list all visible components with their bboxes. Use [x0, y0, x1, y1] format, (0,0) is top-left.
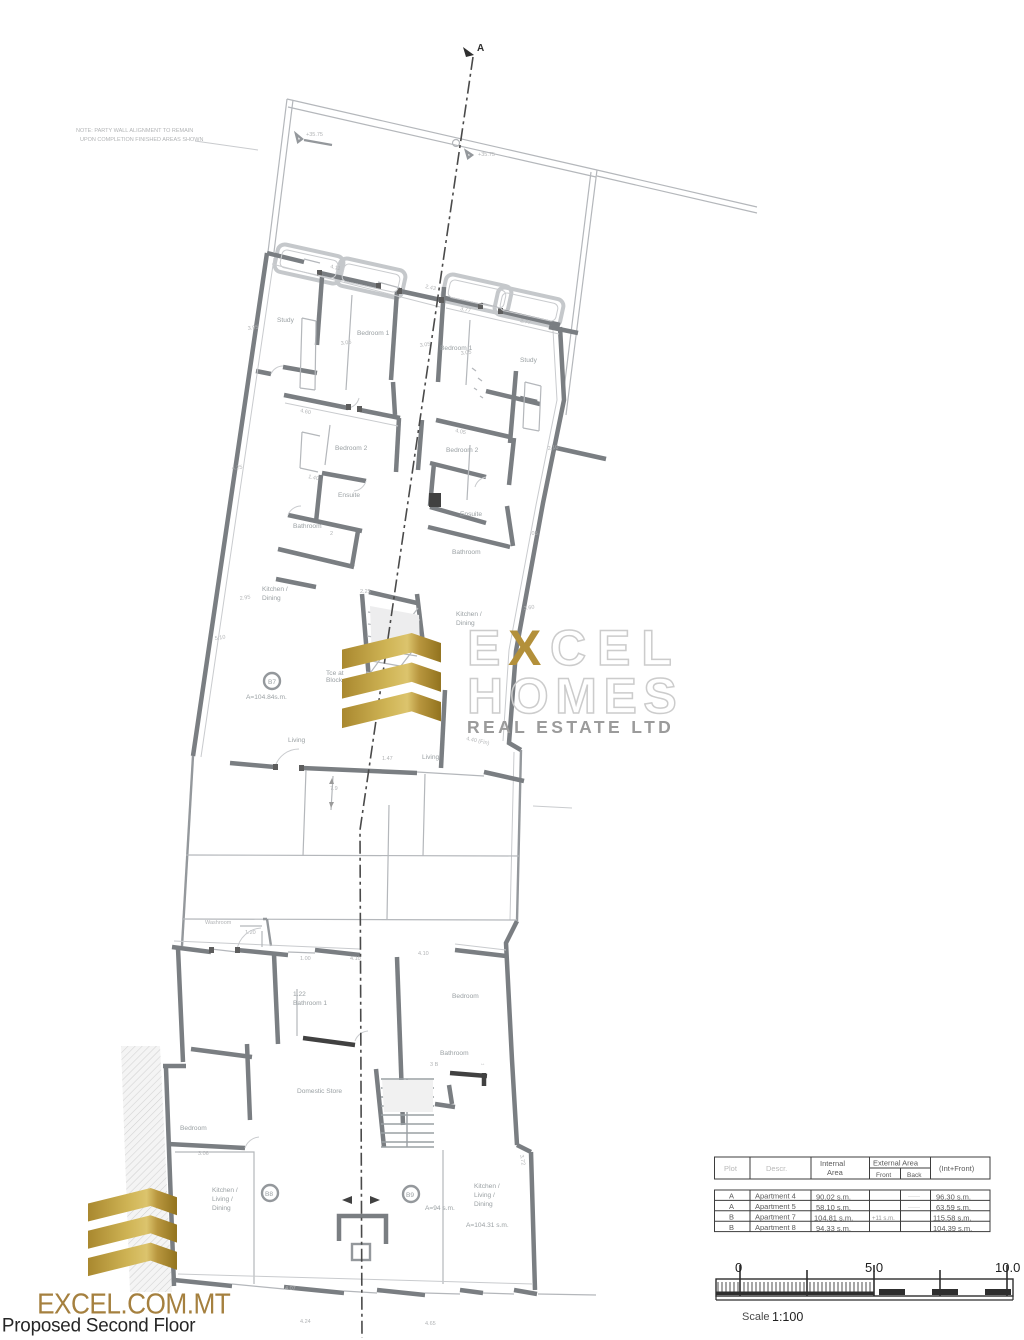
svg-text:2.10: 2.10	[547, 445, 558, 452]
svg-text:Back: Back	[907, 1172, 922, 1179]
svg-text:96.30 s.m.: 96.30 s.m.	[936, 1193, 971, 1202]
svg-text:Bathroom: Bathroom	[452, 549, 481, 556]
svg-text:4.40 (Fin): 4.40 (Fin)	[466, 736, 490, 747]
svg-text:2.95: 2.95	[239, 595, 250, 602]
svg-text:B8: B8	[265, 1191, 273, 1198]
svg-text:Bedroom: Bedroom	[180, 1125, 207, 1132]
svg-text:REAL ESTATE LTD: REAL ESTATE LTD	[467, 717, 674, 737]
svg-text:Dining: Dining	[262, 595, 281, 602]
svg-text:Internal: Internal	[820, 1159, 845, 1168]
svg-text:4.10: 4.10	[418, 951, 429, 957]
svg-text:Tce at: Tce at	[326, 670, 344, 677]
svg-text:Ensuite: Ensuite	[338, 492, 360, 499]
svg-text:Kitchen /: Kitchen /	[262, 586, 288, 593]
svg-text:A=104.31 s.m.: A=104.31 s.m.	[466, 1222, 509, 1229]
svg-text:2.25: 2.25	[360, 589, 371, 595]
svg-text:UPON COMPLETION FINISHED AREAS: UPON COMPLETION FINISHED AREAS SHOWN	[80, 137, 203, 143]
svg-text:B: B	[729, 1212, 734, 1221]
svg-text:+11 s.m.: +11 s.m.	[872, 1216, 895, 1222]
svg-text:Bedroom 2: Bedroom 2	[335, 445, 368, 452]
svg-text:Living /: Living /	[474, 1192, 495, 1199]
svg-text:4.60: 4.60	[300, 408, 312, 416]
svg-text:Front: Front	[876, 1172, 891, 1179]
svg-text:104.81 s.m.: 104.81 s.m.	[814, 1213, 853, 1222]
svg-text:Proposed Second Floor: Proposed Second Floor	[2, 1315, 196, 1337]
svg-text:B7: B7	[268, 679, 276, 686]
svg-text:1.47: 1.47	[382, 756, 393, 762]
svg-text:Living: Living	[422, 754, 440, 761]
svg-text:Kitchen /: Kitchen /	[474, 1183, 500, 1190]
svg-text:Study: Study	[520, 357, 538, 364]
svg-text:1:100: 1:100	[772, 1310, 803, 1324]
svg-text:Domestic Store: Domestic Store	[297, 1088, 342, 1095]
svg-text:1.40: 1.40	[308, 474, 320, 482]
svg-text:——: ——	[908, 1194, 920, 1200]
svg-text:3 B: 3 B	[430, 1062, 439, 1068]
svg-text:3.72: 3.72	[518, 1154, 526, 1166]
svg-text:Bedroom: Bedroom	[452, 993, 479, 1000]
svg-text:Apartment 4: Apartment 4	[755, 1192, 796, 1201]
svg-text:90.02 s.m.: 90.02 s.m.	[816, 1193, 851, 1202]
svg-text:Scale: Scale	[742, 1311, 770, 1323]
svg-text:Study: Study	[277, 317, 295, 324]
svg-text:Apartment 8: Apartment 8	[755, 1223, 796, 1232]
svg-text:3.60: 3.60	[523, 605, 534, 612]
svg-text:4.24: 4.24	[300, 1319, 311, 1325]
svg-text:B: B	[729, 1223, 734, 1232]
svg-text:A=94 s.m.: A=94 s.m.	[425, 1205, 455, 1212]
svg-text:94.33 s.m.: 94.33 s.m.	[816, 1224, 851, 1233]
svg-text:Bedroom 1: Bedroom 1	[357, 330, 390, 337]
svg-text:Dining: Dining	[474, 1201, 493, 1208]
svg-text:104.39 s.m.: 104.39 s.m.	[933, 1224, 972, 1233]
svg-text:4.25: 4.25	[231, 465, 242, 472]
svg-text:Block: Block	[326, 677, 343, 684]
svg-text:58.10 s.m.: 58.10 s.m.	[816, 1203, 851, 1212]
svg-text:4.65: 4.65	[425, 1321, 436, 1327]
svg-text:4.10: 4.10	[350, 956, 361, 962]
svg-text:A: A	[477, 43, 484, 54]
svg-text:4.05: 4.05	[455, 428, 467, 436]
svg-text:↔: ↔	[480, 1061, 486, 1067]
svg-text:Living: Living	[288, 737, 306, 744]
svg-text:2.43: 2.43	[425, 284, 437, 292]
svg-text:1.22: 1.22	[293, 991, 306, 998]
svg-text:Area: Area	[827, 1168, 844, 1177]
svg-text:Bedroom 1: Bedroom 1	[440, 345, 473, 352]
svg-text:63.59 s.m.: 63.59 s.m.	[936, 1203, 971, 1212]
svg-text:7.9: 7.9	[330, 786, 338, 792]
svg-text:NOTE: PARTY WALL ALIGNMENT TO: NOTE: PARTY WALL ALIGNMENT TO REMAIN	[76, 128, 193, 134]
svg-text:A: A	[729, 1202, 734, 1211]
svg-text:10.0: 10.0	[995, 1260, 1020, 1275]
svg-text:Descr.: Descr.	[766, 1164, 787, 1173]
svg-text:Apartment 7: Apartment 7	[755, 1212, 796, 1221]
svg-text:HOMES: HOMES	[467, 668, 683, 724]
svg-text:Apartment 5: Apartment 5	[755, 1202, 796, 1211]
svg-text:Ensuite: Ensuite	[460, 511, 482, 518]
svg-text:——: ——	[908, 1205, 920, 1211]
svg-text:Bathroom: Bathroom	[440, 1050, 469, 1057]
svg-text:3.05: 3.05	[340, 340, 351, 347]
svg-text:A=104.84s.m.: A=104.84s.m.	[246, 694, 287, 701]
svg-text:4.11: 4.11	[330, 264, 341, 272]
svg-text:3.06: 3.06	[198, 1151, 209, 1157]
svg-text:Washroom: Washroom	[205, 920, 232, 926]
svg-text:4.07: 4.07	[285, 1286, 296, 1292]
svg-text:3.05: 3.05	[419, 342, 430, 349]
svg-text:Bathroom: Bathroom	[293, 523, 322, 530]
svg-text:Bedroom 2: Bedroom 2	[446, 447, 479, 454]
svg-text:B9: B9	[406, 1192, 414, 1199]
svg-text:External Area: External Area	[873, 1159, 919, 1168]
svg-text:Plot: Plot	[724, 1164, 738, 1173]
svg-text:5.10: 5.10	[214, 635, 225, 642]
svg-text:(Int+Front): (Int+Front)	[939, 1164, 975, 1173]
svg-text:1.00: 1.00	[300, 956, 311, 962]
svg-text:Living /: Living /	[212, 1196, 233, 1203]
svg-text:115.58 s.m.: 115.58 s.m.	[933, 1213, 972, 1222]
svg-text:+35.75: +35.75	[478, 152, 495, 158]
svg-text:Kitchen /: Kitchen /	[212, 1187, 238, 1194]
svg-text:0: 0	[735, 1260, 742, 1275]
svg-text:Bathroom 1: Bathroom 1	[293, 1000, 327, 1007]
svg-text:5.0: 5.0	[865, 1260, 883, 1275]
svg-text:A: A	[729, 1192, 734, 1201]
svg-text:+35.75: +35.75	[306, 132, 323, 138]
svg-text:Kitchen /: Kitchen /	[456, 611, 482, 618]
svg-text:Dining: Dining	[212, 1205, 231, 1212]
svg-text:3.77: 3.77	[460, 306, 472, 314]
